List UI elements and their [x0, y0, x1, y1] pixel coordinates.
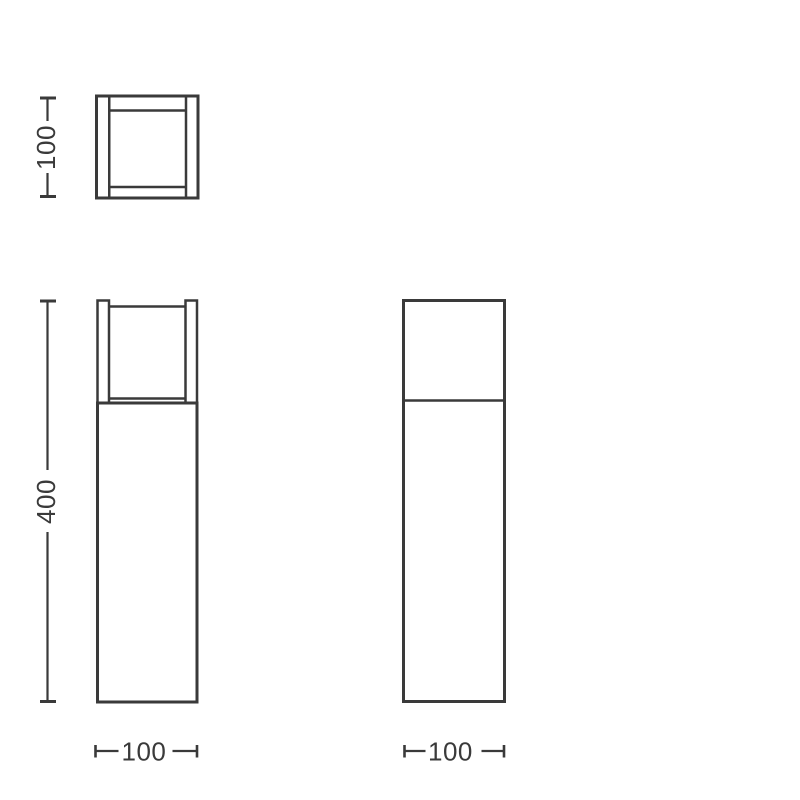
top-view-height-dimension: 100: [31, 98, 61, 197]
side-view-outline: [404, 301, 505, 702]
front-view-shaft: [98, 403, 198, 702]
front-view-left-post: [98, 301, 110, 404]
front-view-right-post: [186, 301, 198, 404]
front-view: [98, 301, 198, 703]
dimension-label-front-view-height: 400: [31, 479, 61, 524]
side-view-width-dimension: 100: [405, 737, 505, 767]
dimension-label-side-view-width: 100: [428, 737, 473, 767]
dimension-drawing: 100 400 100: [0, 0, 800, 800]
front-view-height-dimension: 400: [31, 301, 61, 702]
dimension-label-front-view-width: 100: [122, 737, 167, 767]
side-view: [404, 301, 505, 702]
top-view: [97, 96, 199, 198]
front-view-width-dimension: 100: [96, 737, 198, 767]
technical-drawing-canvas: 100 400 100: [0, 0, 800, 800]
dimension-label-top-view-height: 100: [31, 125, 61, 170]
